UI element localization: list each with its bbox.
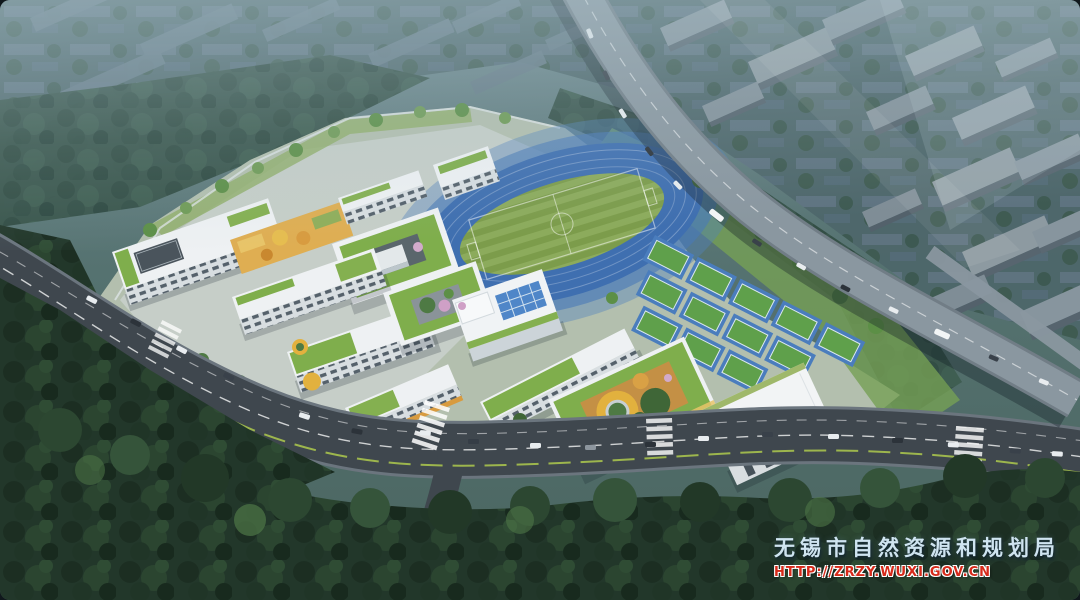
aerial-rendering-image: 无锡市自然资源和规划局 HTTP://ZRZY.WUXI.GOV.CN: [0, 0, 1080, 600]
rendering-canvas: [0, 0, 1080, 600]
